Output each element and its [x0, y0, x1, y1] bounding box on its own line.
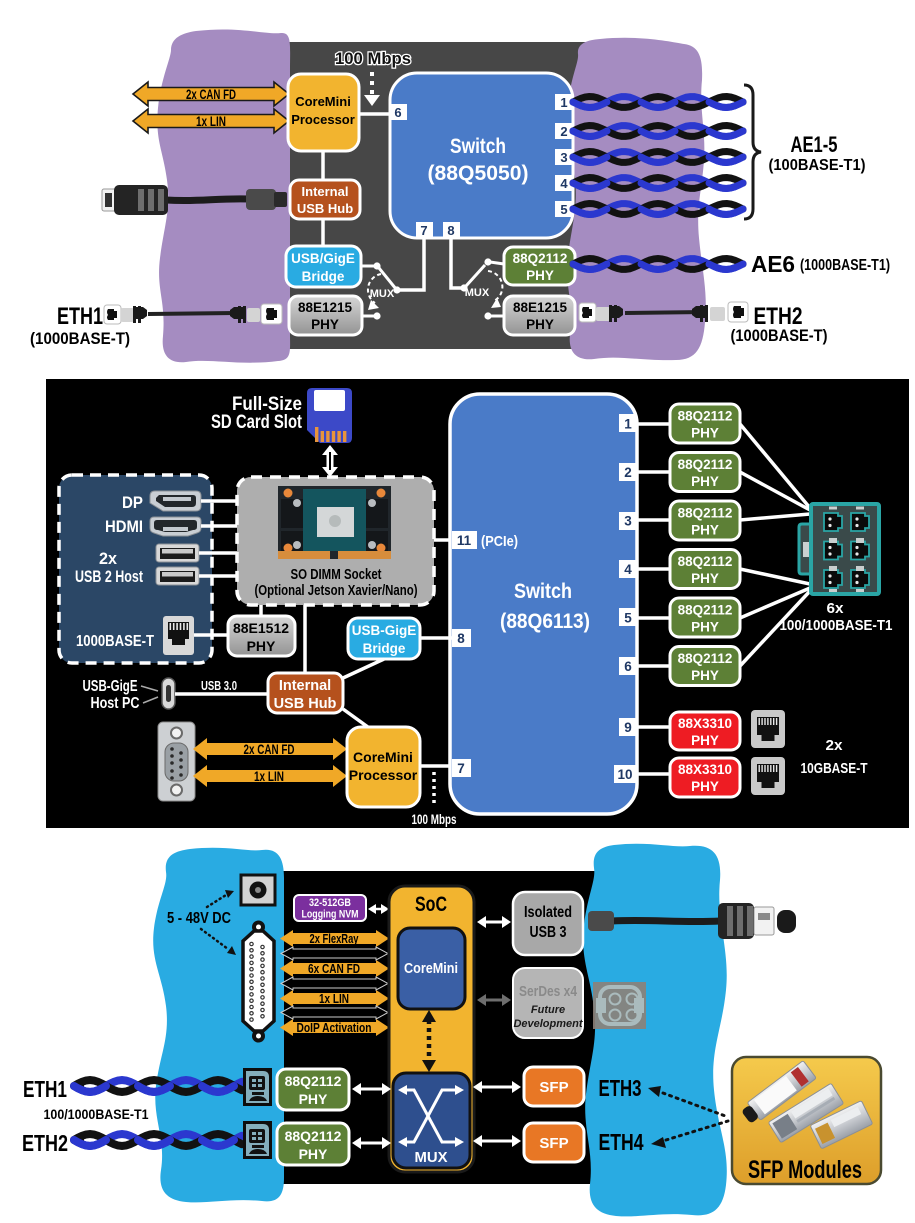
svg-text:3: 3: [560, 150, 567, 165]
svg-text:2: 2: [624, 465, 632, 480]
svg-text:HDMI: HDMI: [105, 517, 143, 536]
svg-text:3: 3: [624, 514, 632, 529]
svg-text:10GBASE-T: 10GBASE-T: [801, 760, 868, 777]
svg-text:Logging NVM: Logging NVM: [302, 909, 359, 921]
svg-text:PHY: PHY: [311, 317, 339, 332]
svg-text:100 Mbps: 100 Mbps: [335, 49, 411, 68]
svg-text:6x CAN FD: 6x CAN FD: [308, 961, 360, 976]
svg-text:(88Q5050): (88Q5050): [428, 162, 529, 185]
svg-text:100 Mbps: 100 Mbps: [412, 812, 457, 827]
svg-text:PHY: PHY: [691, 668, 719, 683]
svg-text:PHY: PHY: [691, 426, 719, 441]
svg-text:4: 4: [624, 562, 632, 577]
svg-text:CoreMini: CoreMini: [353, 749, 413, 765]
svg-text:USB 3.0: USB 3.0: [201, 679, 237, 693]
svg-text:ETH1: ETH1: [23, 1076, 67, 1102]
svg-text:PHY: PHY: [691, 733, 719, 748]
svg-text:SD Card Slot: SD Card Slot: [211, 412, 303, 433]
svg-text:5: 5: [624, 611, 632, 626]
svg-text:Isolated: Isolated: [524, 904, 572, 921]
svg-text:PHY: PHY: [299, 1146, 328, 1162]
svg-text:PHY: PHY: [691, 474, 719, 489]
svg-text:PHY: PHY: [526, 268, 554, 283]
svg-text:Development: Development: [513, 1018, 583, 1030]
svg-text:88Q2112: 88Q2112: [678, 457, 733, 472]
svg-text:USB 2 Host: USB 2 Host: [75, 567, 143, 586]
svg-text:2: 2: [560, 124, 567, 139]
svg-text:88Q2112: 88Q2112: [513, 251, 568, 266]
svg-text:Processor: Processor: [291, 112, 355, 127]
svg-text:7: 7: [420, 223, 427, 238]
svg-text:Bridge: Bridge: [302, 269, 345, 284]
svg-text:88Q2112: 88Q2112: [285, 1128, 342, 1144]
svg-text:2x FlexRay: 2x FlexRay: [310, 931, 360, 946]
svg-text:PHY: PHY: [247, 638, 276, 654]
svg-text:SO DIMM Socket: SO DIMM Socket: [291, 567, 382, 583]
svg-text:88E1215: 88E1215: [298, 300, 353, 315]
svg-text:(88Q6113): (88Q6113): [500, 610, 590, 633]
svg-text:1x LIN: 1x LIN: [319, 991, 349, 1006]
svg-text:MUX: MUX: [370, 288, 395, 300]
svg-text:1000BASE-T: 1000BASE-T: [76, 633, 154, 650]
svg-text:Bridge: Bridge: [363, 641, 406, 656]
svg-text:(1000BASE-T): (1000BASE-T): [30, 329, 130, 348]
svg-text:88E1512: 88E1512: [233, 620, 289, 636]
svg-text:88X3310: 88X3310: [678, 716, 732, 731]
svg-text:PHY: PHY: [691, 620, 719, 635]
svg-text:5 - 48V DC: 5 - 48V DC: [167, 910, 231, 927]
svg-text:PHY: PHY: [691, 523, 719, 538]
svg-text:ETH1: ETH1: [57, 303, 103, 330]
svg-text:1: 1: [560, 95, 567, 110]
svg-text:88Q2112: 88Q2112: [285, 1073, 342, 1089]
svg-text:USB Hub: USB Hub: [274, 696, 337, 712]
svg-text:8: 8: [447, 223, 454, 238]
svg-text:10: 10: [617, 767, 632, 782]
svg-text:(PCIe): (PCIe): [481, 533, 518, 550]
svg-text:MUX: MUX: [415, 1150, 448, 1166]
svg-text:7: 7: [457, 761, 465, 776]
svg-text:Future: Future: [531, 1004, 565, 1016]
svg-text:USB-GigE: USB-GigE: [83, 678, 138, 695]
svg-text:ETH4: ETH4: [599, 1129, 644, 1155]
svg-text:USB Hub: USB Hub: [297, 201, 353, 216]
svg-text:USB/GigE: USB/GigE: [291, 251, 355, 266]
svg-text:(100BASE-T1): (100BASE-T1): [769, 157, 866, 174]
svg-text:SoC: SoC: [415, 893, 447, 916]
svg-text:PHY: PHY: [691, 779, 719, 794]
svg-text:(1000BASE-T): (1000BASE-T): [731, 326, 828, 345]
svg-text:88Q2112: 88Q2112: [678, 506, 733, 521]
svg-text:Internal: Internal: [302, 184, 349, 199]
svg-text:SFP Modules: SFP Modules: [748, 1156, 862, 1184]
svg-text:AE6: AE6: [751, 251, 795, 277]
svg-text:CoreMini: CoreMini: [295, 94, 351, 109]
svg-text:PHY: PHY: [526, 317, 554, 332]
svg-text:88E1215: 88E1215: [513, 300, 568, 315]
svg-text:88Q2112: 88Q2112: [678, 554, 733, 569]
svg-text:ETH3: ETH3: [599, 1075, 642, 1101]
svg-text:CoreMini: CoreMini: [404, 961, 458, 977]
svg-text:6: 6: [624, 659, 632, 674]
svg-text:USB-GigE: USB-GigE: [352, 623, 417, 638]
svg-text:1x LIN: 1x LIN: [196, 113, 226, 129]
svg-text:32-512GB: 32-512GB: [309, 897, 351, 909]
svg-text:4: 4: [560, 176, 568, 191]
svg-text:5: 5: [560, 202, 567, 217]
svg-text:SerDes x4: SerDes x4: [519, 983, 578, 1000]
svg-text:88Q2112: 88Q2112: [678, 409, 733, 424]
svg-text:100/1000BASE-T1: 100/1000BASE-T1: [44, 1106, 149, 1122]
svg-text:2x CAN FD: 2x CAN FD: [244, 741, 295, 757]
svg-text:9: 9: [624, 720, 632, 735]
svg-text:Processor: Processor: [349, 767, 418, 783]
svg-text:Host PC: Host PC: [91, 695, 140, 712]
svg-text:2x: 2x: [826, 737, 844, 754]
svg-text:100/1000BASE-T1: 100/1000BASE-T1: [780, 617, 893, 634]
svg-text:2x CAN FD: 2x CAN FD: [186, 86, 236, 102]
svg-text:1x LIN: 1x LIN: [254, 768, 284, 784]
svg-text:(Optional Jetson Xavier/Nano): (Optional Jetson Xavier/Nano): [255, 583, 418, 599]
svg-text:PHY: PHY: [299, 1091, 328, 1107]
svg-text:(1000BASE-T1): (1000BASE-T1): [800, 257, 890, 274]
svg-text:Switch: Switch: [514, 580, 572, 603]
svg-text:2x: 2x: [99, 549, 118, 568]
svg-text:11: 11: [457, 533, 472, 548]
svg-text:MUX: MUX: [465, 287, 490, 299]
svg-text:DoIP Activation: DoIP Activation: [297, 1020, 372, 1035]
svg-text:Switch: Switch: [450, 135, 506, 158]
svg-text:DP: DP: [122, 493, 143, 512]
svg-text:88X3310: 88X3310: [678, 762, 732, 777]
svg-text:1: 1: [624, 417, 632, 432]
svg-text:6x: 6x: [827, 600, 845, 617]
svg-text:88Q2112: 88Q2112: [678, 651, 733, 666]
svg-text:88Q2112: 88Q2112: [678, 603, 733, 618]
svg-text:SFP: SFP: [539, 1079, 568, 1096]
svg-text:USB 3: USB 3: [530, 924, 567, 941]
svg-text:6: 6: [394, 105, 401, 120]
svg-text:SFP: SFP: [539, 1135, 568, 1152]
svg-text:ETH2: ETH2: [22, 1130, 68, 1156]
svg-text:Internal: Internal: [279, 678, 331, 694]
svg-text:AE1-5: AE1-5: [791, 132, 838, 157]
svg-text:8: 8: [457, 631, 465, 646]
svg-text:PHY: PHY: [691, 571, 719, 586]
